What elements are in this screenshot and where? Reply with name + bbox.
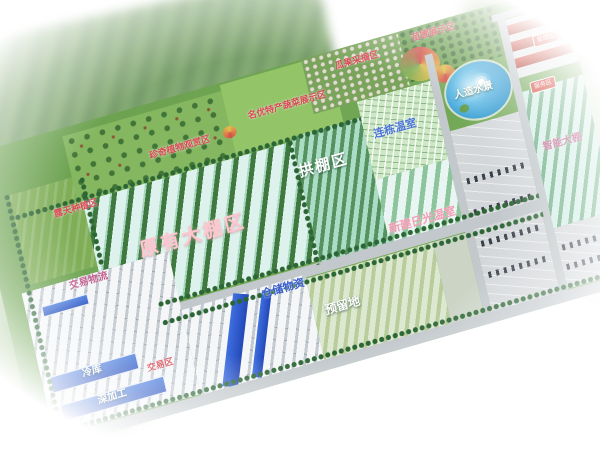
blue-roof-shed [41,293,90,317]
parking-cars-row [566,249,600,270]
parking-cars-row [562,230,600,251]
aerial-masterplan: 苗圃展示区 瓜果采摘区 名优特产蔬菜展示区 珍奇植物观赏区 露天种植区 人造水景… [0,0,600,450]
parking-cars-row [488,256,547,278]
site-plan: 苗圃展示区 瓜果采摘区 名优特产蔬菜展示区 珍奇植物观赏区 露天种植区 人造水景… [0,0,600,450]
parking-cars-row [466,162,525,184]
